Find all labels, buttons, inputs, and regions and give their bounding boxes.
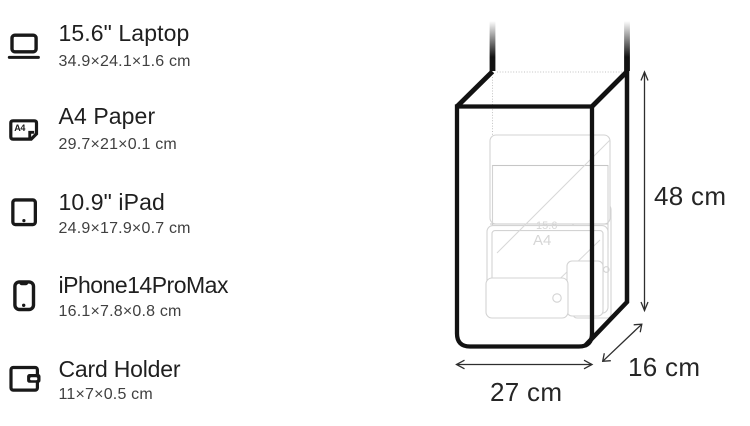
svg-text:A4: A4 xyxy=(533,232,551,249)
svg-text:15.6: 15.6 xyxy=(536,220,557,232)
